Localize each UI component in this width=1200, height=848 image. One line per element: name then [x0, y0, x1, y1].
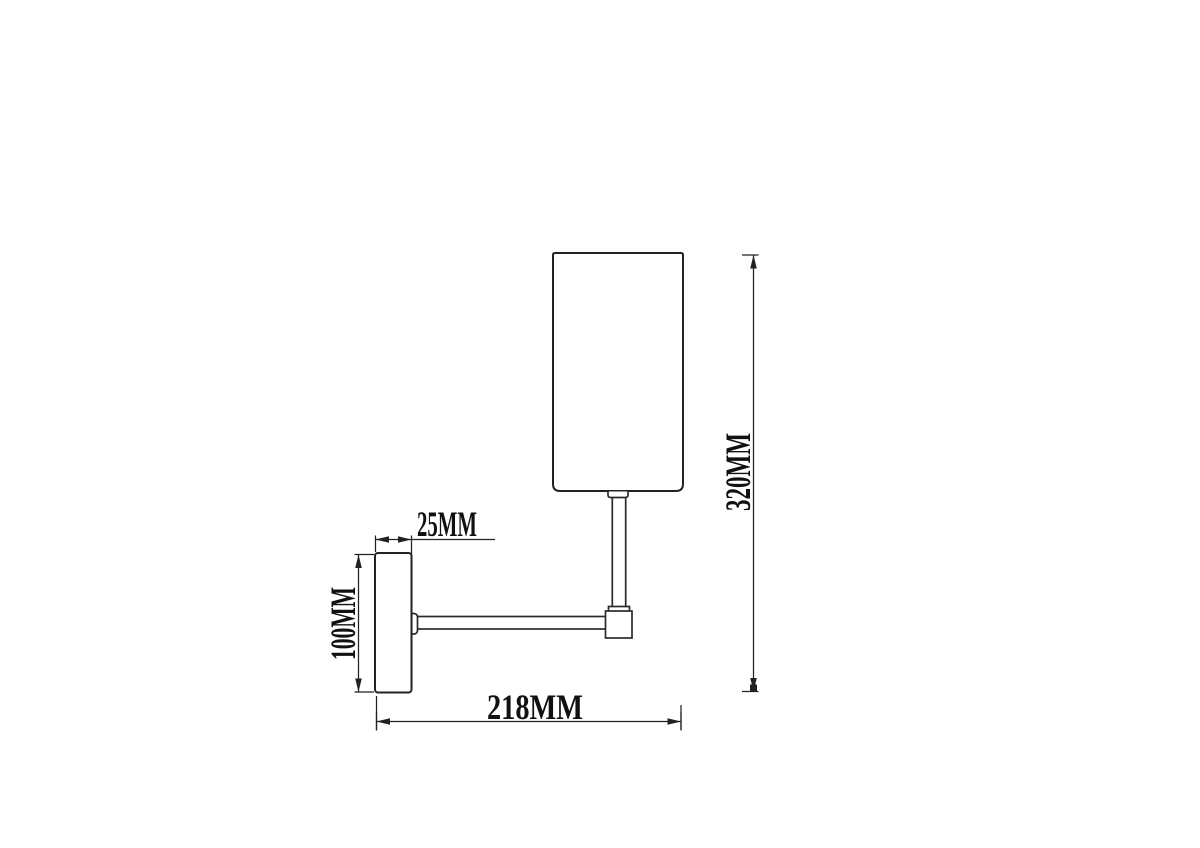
elbow-joint — [606, 611, 633, 638]
stem — [612, 497, 625, 608]
arrowhead-down — [355, 679, 362, 693]
wall-plate — [375, 553, 412, 693]
arrowhead-up — [750, 255, 757, 269]
arrowhead-right — [668, 718, 682, 725]
dimension-overall-height: 320MM — [718, 255, 759, 692]
shade-neck — [608, 492, 628, 498]
arrowhead-right — [398, 536, 412, 543]
dimension-plate-height: 100MM — [323, 555, 374, 693]
lamp-shade — [553, 253, 683, 491]
arm — [417, 617, 608, 630]
arrowhead-up — [355, 555, 362, 569]
wall-lamp-dimension-drawing: 25MM 100MM 218MM — [0, 0, 1200, 848]
dimension-overall-width: 218MM — [377, 687, 682, 731]
dimension-label-320mm: 320MM — [718, 433, 758, 511]
arrow-base-dot — [750, 685, 757, 692]
technical-drawing-page: 25MM 100MM 218MM — [0, 0, 1200, 848]
dimension-label-25mm: 25MM — [417, 504, 477, 544]
arrowhead-left — [376, 536, 390, 543]
dimension-label-218mm: 218MM — [487, 687, 583, 727]
dimension-label-100mm: 100MM — [323, 587, 363, 660]
arrowhead-left — [377, 718, 391, 725]
